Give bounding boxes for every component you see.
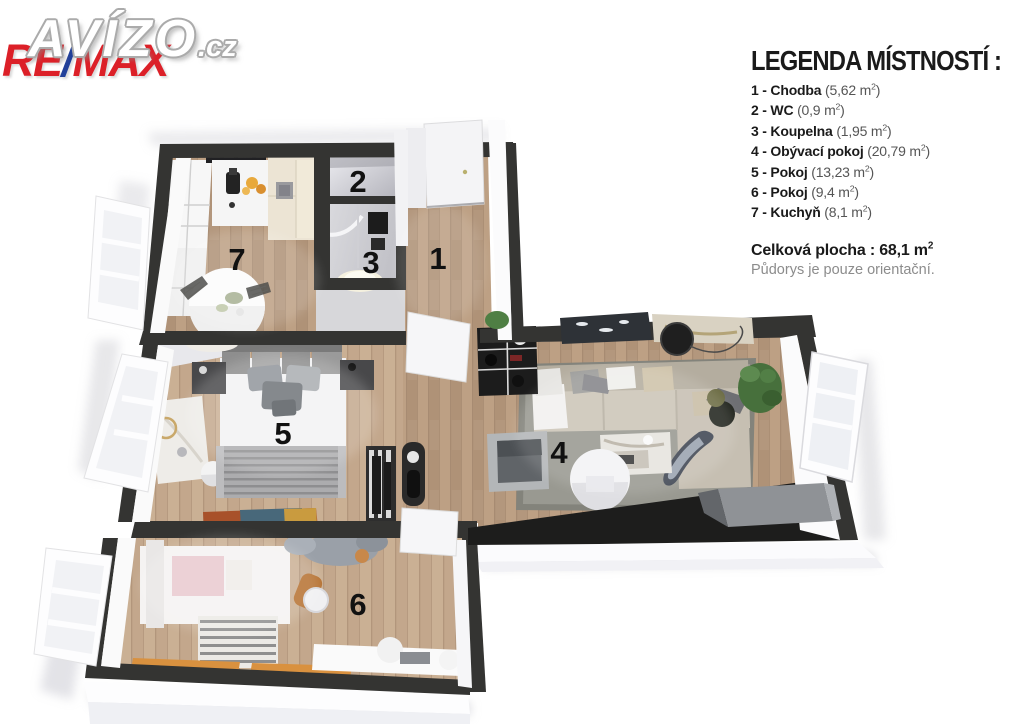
svg-text:5: 5 [274,416,291,451]
svg-text:4: 4 [550,435,568,470]
svg-text:6: 6 [349,587,366,622]
svg-text:1: 1 [429,241,446,276]
svg-text:7: 7 [228,242,245,277]
svg-text:3: 3 [362,245,379,280]
svg-text:2: 2 [349,164,366,199]
